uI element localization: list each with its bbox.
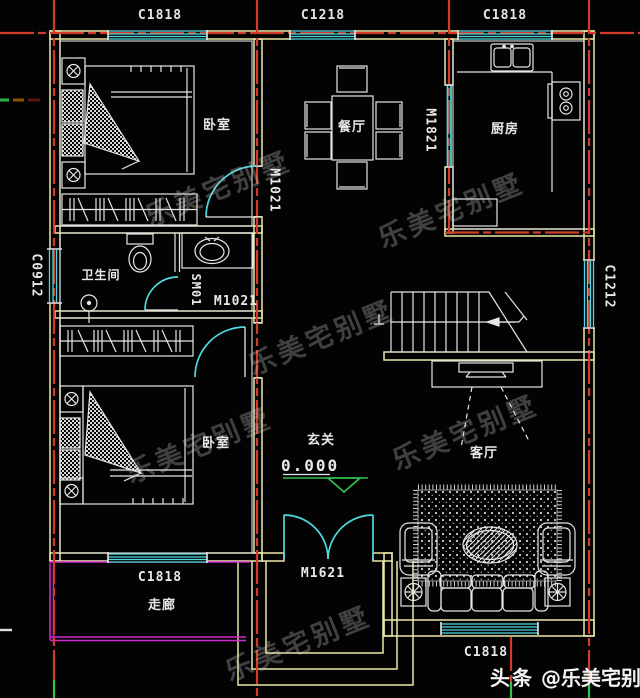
window-label-top-left: C1818 <box>135 9 185 22</box>
room-label-kitchen: 厨房 <box>489 123 521 136</box>
window-label-living: C1818 <box>461 646 511 659</box>
window-label-top-right: C1818 <box>480 9 530 22</box>
door-label-shower: SM01 <box>190 250 202 330</box>
room-label-bedroom2: 卧室 <box>200 437 232 450</box>
credit-handle: @乐美宅别墅 <box>541 666 640 690</box>
entrance-door-arc-right <box>328 515 373 559</box>
edge-ticks <box>0 100 40 630</box>
door-label-bedroom1: M1021 <box>268 151 281 231</box>
shower-door-arc <box>145 277 178 310</box>
room-label-foyer: 玄关 <box>305 434 337 447</box>
door-label-bedroom2: M1021 <box>213 295 259 308</box>
room-label-living: 客厅 <box>468 447 500 460</box>
entrance-door-arc-left <box>284 515 328 559</box>
elevation-marker <box>283 475 368 493</box>
credit-watermark: 头条 @乐美宅别墅 <box>490 662 640 691</box>
room-label-bedroom1: 卧室 <box>201 119 233 132</box>
window-label-left: C0912 <box>30 236 43 316</box>
room-label-bathroom: 卫生间 <box>77 269 125 281</box>
bedroom2-door-arc <box>195 327 245 377</box>
elevation-value: 0.000 <box>281 458 331 474</box>
living-room-furniture <box>400 487 575 611</box>
room-label-corridor: 走廊 <box>146 599 178 612</box>
bedroom2-furniture <box>60 326 193 504</box>
door-label-kitchen: M1821 <box>424 91 437 171</box>
window-label-bottom-left: C1818 <box>135 571 185 584</box>
window-label-right: C1212 <box>603 247 616 327</box>
stairs <box>374 292 542 387</box>
door-label-entrance: M1621 <box>300 567 346 580</box>
credit-prefix: 头条 <box>490 666 534 690</box>
window-label-top-center: C1218 <box>298 9 348 22</box>
floor-plan: 乐美宅别墅 乐美宅别墅 乐美宅别墅 乐美宅别墅 乐美宅别墅 乐美宅别墅 C181… <box>0 0 640 698</box>
room-label-dining: 餐厅 <box>336 121 368 134</box>
